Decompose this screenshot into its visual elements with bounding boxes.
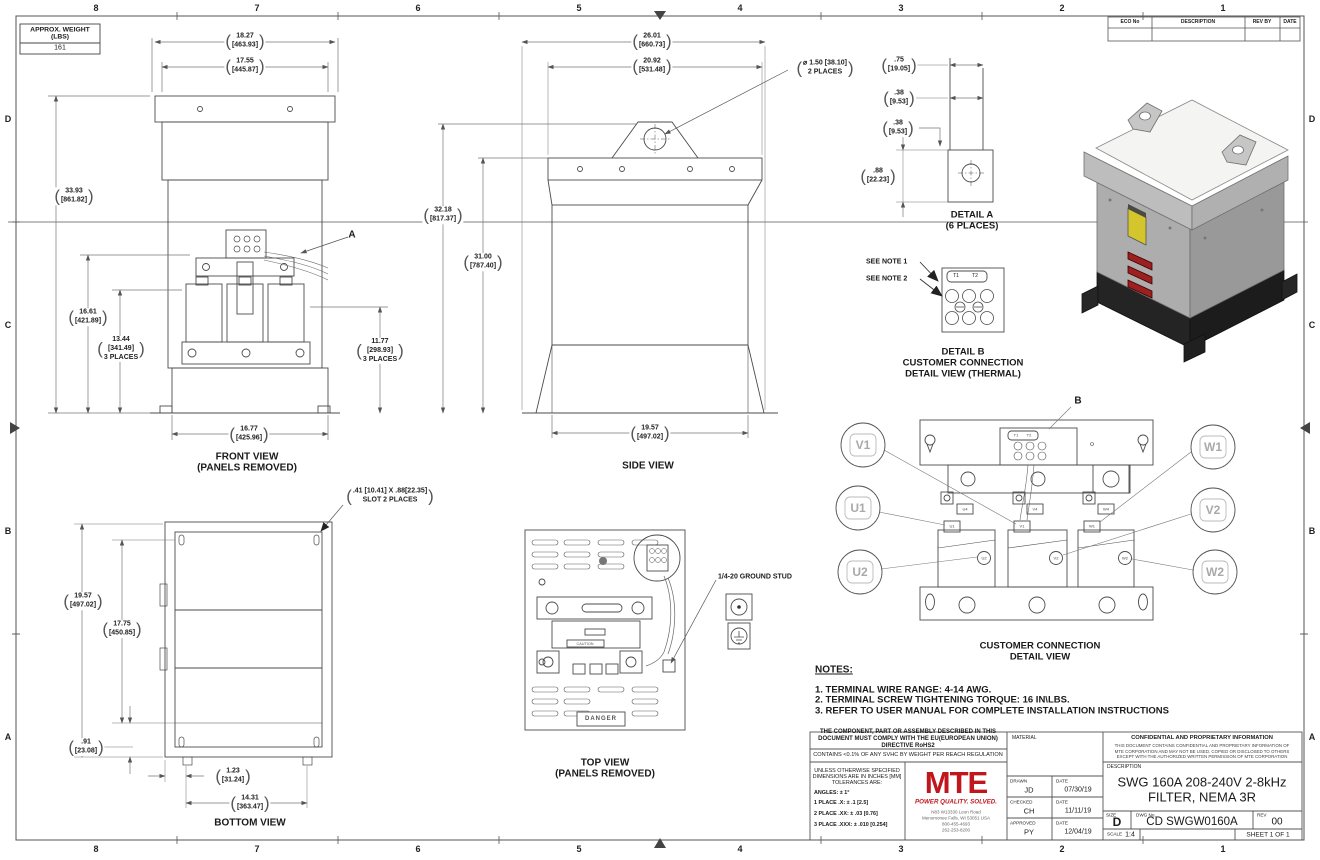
weight-box-units: (LBS) (51, 34, 69, 41)
detail-b-subtitle-2: DETAIL VIEW (THERMAL) (905, 369, 1021, 380)
detail-a-dim-1: .75[19.05] (880, 56, 917, 74)
zone-bottom-1: 1 (1220, 844, 1225, 854)
side-view-title: SIDE VIEW (622, 461, 674, 472)
tolerance-header-3: TOLERANCES ARE: (832, 780, 882, 786)
balloon-v2: V2 (1206, 503, 1221, 517)
detail-a-drawing (948, 58, 993, 202)
front-view-title: FRONT VIEW (216, 452, 279, 463)
approved-date-value: 12/04/19 (1064, 829, 1091, 836)
tag-v2: V2 (1054, 556, 1059, 561)
side-view-dims (438, 42, 788, 438)
confidential-body: THIS DOCUMENT CONTAINS CONFIDENTIAL AND … (1111, 743, 1293, 760)
detail-a-title: DETAIL A (951, 210, 994, 221)
mte-phone-2: 262-253-8200 (942, 828, 970, 833)
tolerance-2-place: 2 PLACE .XX: ± .03 [0.76] (814, 811, 878, 817)
tolerance-angles: ANGLES: ± 1° (814, 790, 849, 796)
note-item-2: 2. TERMINAL SCREW TIGHTENING TORQUE: 16 … (815, 695, 1070, 706)
zone-left-b: B (5, 526, 12, 536)
detail-a-dim-2: .38[9.53] (882, 89, 915, 107)
zone-right-a: A (1309, 732, 1316, 742)
notes-title: NOTES: (815, 665, 853, 676)
detail-b-t1: T1 (953, 273, 959, 279)
front-dim-height-coils: 13.44[341.49]3 PLACES (96, 336, 145, 362)
zone-top-4: 4 (737, 3, 742, 13)
checked-date-label: DATE (1056, 800, 1068, 805)
detail-a-dim-4: .88[22.23] (859, 167, 896, 185)
zone-left-a: A (5, 732, 12, 742)
zone-top-2: 2 (1059, 3, 1064, 13)
tag-w4: W4 (1103, 507, 1109, 512)
drawn-label: DRAWN (1010, 779, 1027, 784)
side-view-drawing (522, 122, 778, 413)
front-callout-a: A (348, 230, 355, 241)
detail-b-see-note-1: SEE NOTE 1 (866, 259, 907, 266)
zone-bottom-2: 2 (1059, 844, 1064, 854)
balloon-w1: W1 (1204, 440, 1222, 454)
side-dim-depth-base: 19.57[497.02] (629, 424, 670, 442)
side-dim-depth-top: 20.92[531.48] (631, 57, 672, 75)
eco-col-eco-no: ECO No (1121, 19, 1140, 25)
bottom-view-drawing (160, 522, 332, 765)
bottom-dim-depth-inner: 17.75[450.85] (101, 620, 142, 638)
approved-label: APPROVED (1010, 821, 1036, 826)
side-dim-height-body: 31.00[787.40] (462, 253, 503, 271)
zone-top-5: 5 (576, 3, 581, 13)
balloon-u2: U2 (852, 565, 867, 579)
mte-address-1: N83 W13330 Leon Road (931, 810, 981, 815)
tag-u1: U1 (949, 524, 954, 529)
danger-label: DANGER (585, 716, 617, 722)
top-view-drawing (525, 530, 752, 730)
zone-top-6: 6 (415, 3, 420, 13)
ground-stud-callout: 1/4-20 GROUND STUD (718, 574, 792, 581)
tag-w2: W2 (1122, 556, 1128, 561)
confidential-title: CONFIDENTIAL AND PROPRIETARY INFORMATION (1131, 735, 1273, 741)
eco-col-date: DATE (1283, 19, 1296, 25)
tag-u4: U4 (962, 507, 967, 512)
tag-w1: W1 (1089, 524, 1095, 529)
rev-value: 00 (1271, 817, 1282, 828)
balloon-u1: U1 (850, 501, 865, 515)
front-view-dims (48, 38, 388, 440)
front-dim-height-overall: 33.93[861.82] (53, 187, 94, 205)
bottom-view-dims (74, 505, 343, 808)
bottom-view-title: BOTTOM VIEW (214, 818, 285, 829)
zone-top-8: 8 (93, 3, 98, 13)
tolerance-1-place: 1 PLACE .X: ± .1 [2.5] (814, 800, 868, 806)
tag-t1: T1 (1014, 433, 1019, 438)
detail-a-dim-3: .38[9.53] (881, 119, 914, 137)
mte-tagline: POWER QUALITY. SOLVED. (915, 799, 997, 806)
detail-a-subtitle: (6 PLACES) (946, 221, 999, 232)
mte-phone-1: 800-455-4693 (942, 822, 970, 827)
front-dim-width-base: 16.77[425.96] (228, 425, 269, 443)
tag-v1: V1 (1020, 524, 1025, 529)
detail-b-t2: T2 (972, 273, 978, 279)
connection-view-balloons (836, 407, 1237, 594)
zone-bottom-6: 6 (415, 844, 420, 854)
connection-view-subtitle: DETAIL VIEW (1010, 652, 1070, 663)
drawn-date-value: 07/30/19 (1064, 787, 1091, 794)
front-dim-width-outer: 18.27[463.93] (224, 32, 265, 50)
top-view-leaders (671, 580, 716, 663)
checked-date-value: 11/11/19 (1065, 808, 1091, 815)
approved-date-label: DATE (1056, 821, 1068, 826)
detail-b-subtitle-1: CUSTOMER CONNECTION (903, 358, 1024, 369)
tag-t2: T2 (1027, 433, 1032, 438)
dwg-no-value: CD SWGW0160A (1146, 816, 1237, 828)
rev-label: REV (1257, 813, 1266, 818)
connection-view-title: CUSTOMER CONNECTION (980, 641, 1101, 652)
note-item-3: 3. REFER TO USER MANUAL FOR COMPLETE INS… (815, 706, 1169, 717)
zone-right-c: C (1309, 320, 1316, 330)
detail-b-drawing (920, 262, 1004, 332)
bottom-dim-depth-outer: 19.57[497.02] (62, 592, 103, 610)
top-view-title: TOP VIEW (581, 758, 630, 769)
drawn-value: JD (1024, 786, 1033, 795)
weight-box-value: 161 (54, 45, 66, 52)
zone-left-c: C (5, 320, 12, 330)
top-view-subtitle: (PANELS REMOVED) (555, 769, 655, 780)
caution-label: CAUTION (576, 642, 593, 646)
detail-b-see-note-2: SEE NOTE 2 (866, 276, 907, 283)
front-dim-width-inner: 17.55[445.87] (224, 57, 265, 75)
bottom-slot-callout: .41 [10.41] X .88[22.35]SLOT 2 PLACES (345, 487, 435, 505)
side-dim-depth-outer: 26.01[660.73] (631, 32, 672, 50)
material-label: MATERIAL (1012, 735, 1037, 741)
zone-top-7: 7 (254, 3, 259, 13)
eco-col-description: DESCRIPTION (1181, 19, 1215, 25)
side-dim-lift-hole: ⌀ 1.50 [38.10]2 PLACES (795, 59, 854, 77)
tag-v4: V4 (1033, 507, 1038, 512)
checked-label: CHECKED (1010, 800, 1032, 805)
checked-value: CH (1024, 807, 1035, 816)
zone-bottom-7: 7 (254, 844, 259, 854)
bottom-dim-foot: 1.23[31.24] (214, 767, 251, 785)
description-line-2: FILTER, NEMA 3R (1148, 790, 1256, 805)
sheet-value: SHEET 1 OF 1 (1246, 832, 1289, 839)
zone-bottom-5: 5 (576, 844, 581, 854)
compliance-statement: THE COMPONENT, PART OR ASSEMBLY DESCRIBE… (814, 729, 1002, 751)
zone-bottom-8: 8 (93, 844, 98, 854)
mte-address-2: Menomonee Falls, WI 53051 USA (922, 816, 990, 821)
balloon-v1: V1 (856, 438, 871, 452)
zone-top-3: 3 (898, 3, 903, 13)
front-view-drawing (150, 96, 340, 413)
scale-value: 1:4 (1125, 832, 1135, 839)
drawing-sheet: 8 7 6 5 4 3 2 1 8 7 6 5 4 3 2 1 D C B A … (0, 0, 1320, 860)
front-dim-height-terminals: 16.61[421.89] (67, 308, 108, 326)
zone-right-d: D (1309, 114, 1316, 124)
detail-b-title: DETAIL B (942, 347, 985, 358)
drawn-date-label: DATE (1056, 779, 1068, 784)
balloon-w2: W2 (1206, 565, 1224, 579)
zone-bottom-4: 4 (737, 844, 742, 854)
front-view-subtitle: (PANELS REMOVED) (197, 463, 297, 474)
isometric-render (1082, 100, 1297, 362)
description-label: DESCRIPTION (1107, 764, 1141, 770)
eco-col-rev-by: REV BY (1253, 19, 1272, 25)
zone-right-b: B (1309, 526, 1316, 536)
front-dim-height-right: 11.77[298.93]3 PLACES (355, 338, 404, 364)
zone-bottom-3: 3 (898, 844, 903, 854)
mte-logo: MTE (925, 765, 987, 801)
bottom-dim-width-feet: 14.31[363.47] (229, 794, 270, 812)
zone-left-d: D (5, 114, 12, 124)
tolerance-3-place: 3 PLACE .XXX: ± .010 [0.254] (814, 822, 887, 828)
size-value: D (1113, 815, 1122, 829)
zone-top-1: 1 (1220, 3, 1225, 13)
scale-label: SCALE (1107, 832, 1122, 837)
weight-box-title: APPROX. WEIGHT (30, 27, 90, 34)
bottom-dim-offset: .91[23.08] (67, 738, 104, 756)
connection-view-drawing (920, 420, 1153, 620)
tag-u2: U2 (981, 556, 986, 561)
approved-value: PY (1024, 828, 1034, 837)
reach-statement: CONTAINS <0.1% OF ANY SVHC BY WEIGHT PER… (813, 752, 1003, 758)
connection-callout-b: B (1074, 396, 1081, 407)
description-line-1: SWG 160A 208-240V 2-8kHz (1117, 775, 1286, 790)
side-dim-height-overall: 32.18[817.37] (422, 206, 463, 224)
